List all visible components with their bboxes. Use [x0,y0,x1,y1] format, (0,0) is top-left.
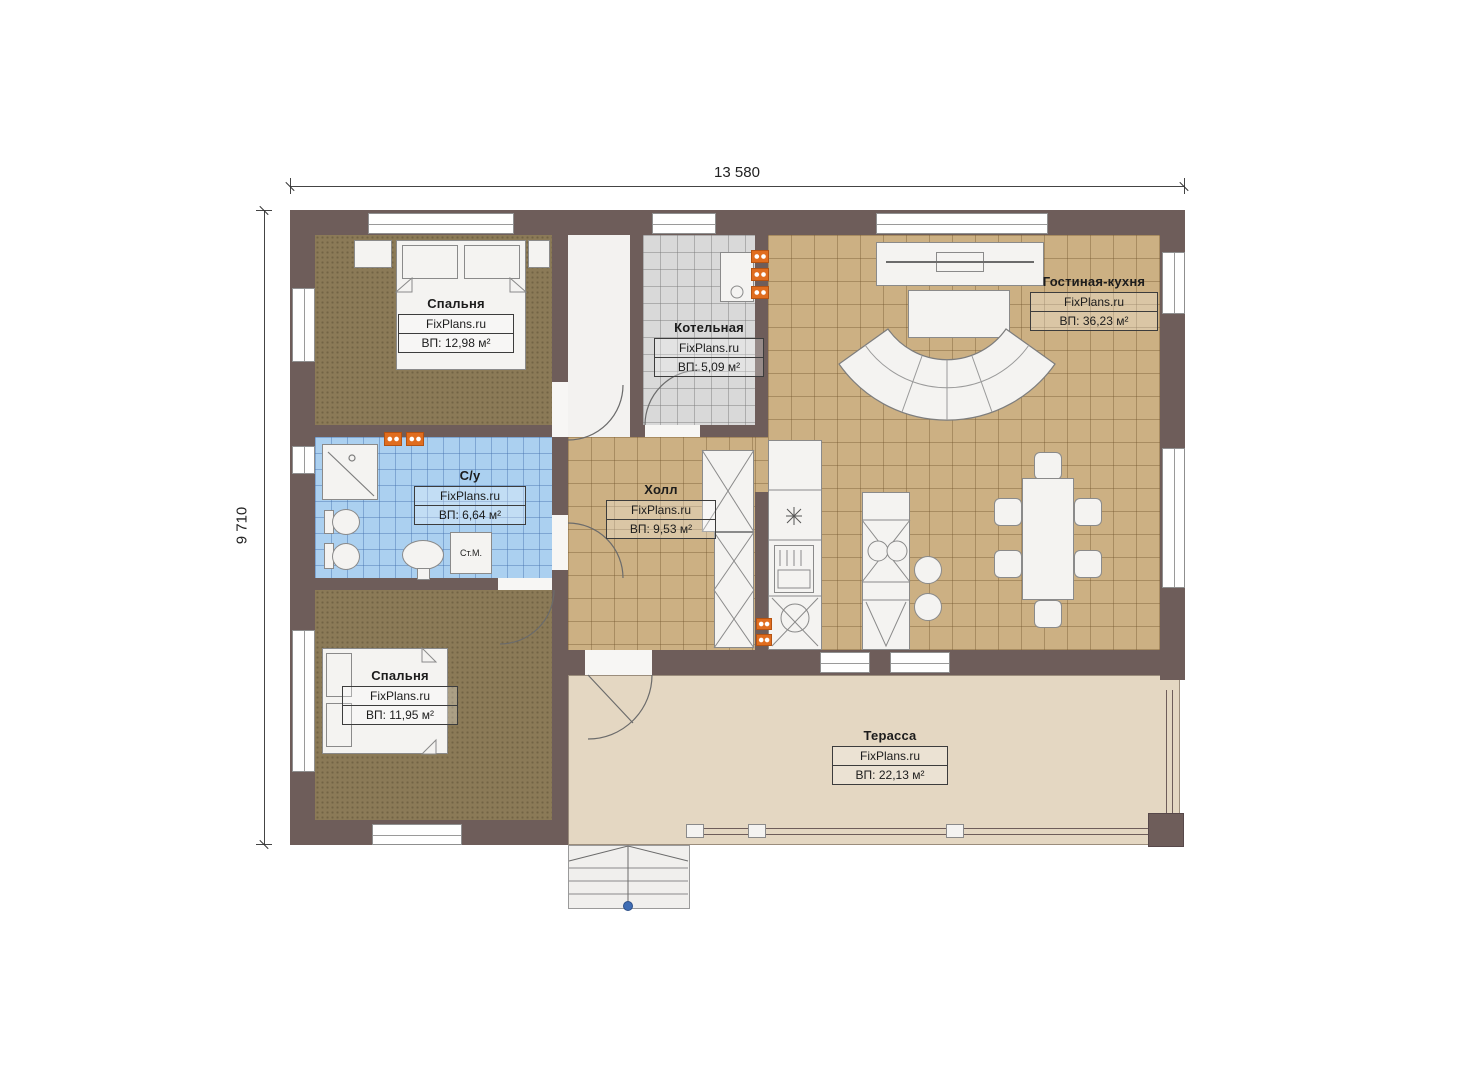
bidet-icon [332,543,360,570]
brand-label: FixPlans.ru [1031,293,1157,311]
radiator-icon [751,250,769,263]
railing-post [946,824,964,838]
radiator-icon [756,634,772,646]
area-label: ВП: 6,64 м² [415,505,525,524]
dining-chair [1074,498,1102,526]
closet-floor [568,235,630,437]
room-label-bedroom2: Спальня FixPlans.ru ВП: 11,95 м² [342,668,458,725]
dimension-width-label: 13 580 [637,164,837,181]
room-info-box: FixPlans.ru ВП: 5,09 м² [654,338,764,377]
radiator-icon [751,286,769,299]
wardrobe [714,532,754,648]
area-label: ВП: 12,98 м² [399,333,513,352]
pillow [402,245,458,279]
railing-post [748,824,766,838]
window [890,652,950,673]
bar-stool [914,556,942,584]
room-label-living: Гостиная-кухня FixPlans.ru ВП: 36,23 м² [1030,274,1158,331]
room-info-box: FixPlans.ru ВП: 11,95 м² [342,686,458,725]
door-opening-bedroom1 [552,382,568,437]
dimension-line-left [264,210,265,845]
room-name: Котельная [654,320,764,335]
dining-table [1022,478,1074,600]
radiator-icon [384,432,402,446]
brand-label: FixPlans.ru [833,747,947,765]
window [1162,448,1185,588]
area-label: ВП: 5,09 м² [655,357,763,376]
wall-bedroom1-bathroom [315,425,552,437]
fridge [774,545,814,593]
nightstand [528,240,550,268]
room-name: Спальня [342,668,458,683]
boiler-unit [720,252,754,302]
room-info-box: FixPlans.ru ВП: 9,53 м² [606,500,716,539]
railing [1172,690,1173,818]
room-name: Холл [606,482,716,497]
radiator-icon [406,432,424,446]
brand-label: FixPlans.ru [607,501,715,519]
room-label-terrace: Терасса FixPlans.ru ВП: 22,13 м² [832,728,948,785]
window [820,652,870,673]
bar-stool [914,593,942,621]
washing-machine-label: Ст.М. [450,533,492,573]
nightstand [354,240,392,268]
coffee-table [908,290,1010,338]
room-name: Терасса [832,728,948,743]
hall-living-passage [755,437,768,492]
room-label-bathroom: С/у FixPlans.ru ВП: 6,64 м² [414,468,526,525]
area-label: ВП: 11,95 м² [343,705,457,724]
shower [322,444,378,500]
tv-icon [936,252,984,272]
terrace-corner-post [1148,813,1184,847]
door-opening-boiler [645,425,700,437]
window [1162,252,1185,314]
stairs [568,845,690,909]
area-label: ВП: 9,53 м² [607,519,715,538]
area-label: ВП: 22,13 м² [833,765,947,784]
room-name: Спальня [398,296,514,311]
radiator-icon [756,618,772,630]
dining-chair [1074,550,1102,578]
radiator-icon [751,268,769,281]
door-opening-bedroom2 [498,578,552,590]
room-label-hall: Холл FixPlans.ru ВП: 9,53 м² [606,482,716,539]
room-info-box: FixPlans.ru ВП: 22,13 м² [832,746,948,785]
door-opening-terrace [585,650,652,675]
room-label-boiler: Котельная FixPlans.ru ВП: 5,09 м² [654,320,764,377]
room-info-box: FixPlans.ru ВП: 36,23 м² [1030,292,1158,331]
railing [1166,690,1167,818]
brand-label: FixPlans.ru [655,339,763,357]
window [876,213,1048,234]
room-name: Гостиная-кухня [1030,274,1158,289]
dimension-line-top [290,186,1185,187]
room-name: С/у [414,468,526,483]
brand-label: FixPlans.ru [343,687,457,705]
dimension-height-label: 9 710 [234,496,251,556]
dining-chair [994,498,1022,526]
dining-chair [1034,600,1062,628]
toilet-icon [332,509,360,535]
pillow [464,245,520,279]
dining-chair [1034,452,1062,480]
room-label-bedroom1: Спальня FixPlans.ru ВП: 12,98 м² [398,296,514,353]
floor-plan: 13 580 9 710 [0,0,1474,1080]
window [292,288,315,362]
room-info-box: FixPlans.ru ВП: 6,64 м² [414,486,526,525]
window [292,630,315,772]
brand-label: FixPlans.ru [415,487,525,505]
sink-icon [402,540,444,570]
area-label: ВП: 36,23 м² [1031,311,1157,330]
railing-post [686,824,704,838]
window [372,824,462,845]
sink-pedestal [417,568,430,580]
door-opening-bathroom [552,515,568,570]
window [652,213,716,234]
window [368,213,514,234]
window [292,446,315,474]
wall-closet-boiler [630,235,643,425]
brand-label: FixPlans.ru [399,315,513,333]
kitchen-island [862,492,910,650]
room-info-box: FixPlans.ru ВП: 12,98 м² [398,314,514,353]
dining-chair [994,550,1022,578]
